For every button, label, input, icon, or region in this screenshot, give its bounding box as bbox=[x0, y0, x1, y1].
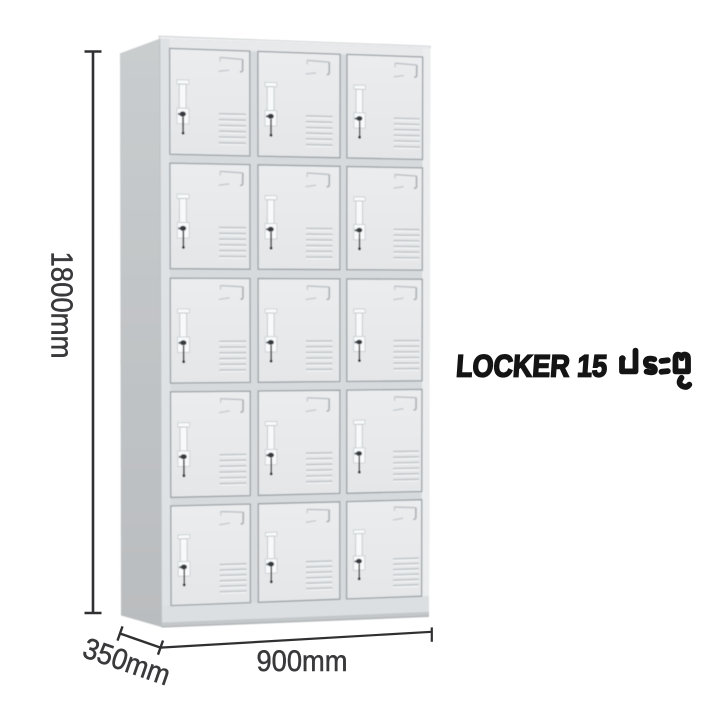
svg-text:1800mm: 1800mm bbox=[45, 252, 79, 359]
svg-text:LOCKER 15: LOCKER 15 bbox=[455, 349, 608, 384]
svg-text:900mm: 900mm bbox=[257, 645, 348, 678]
